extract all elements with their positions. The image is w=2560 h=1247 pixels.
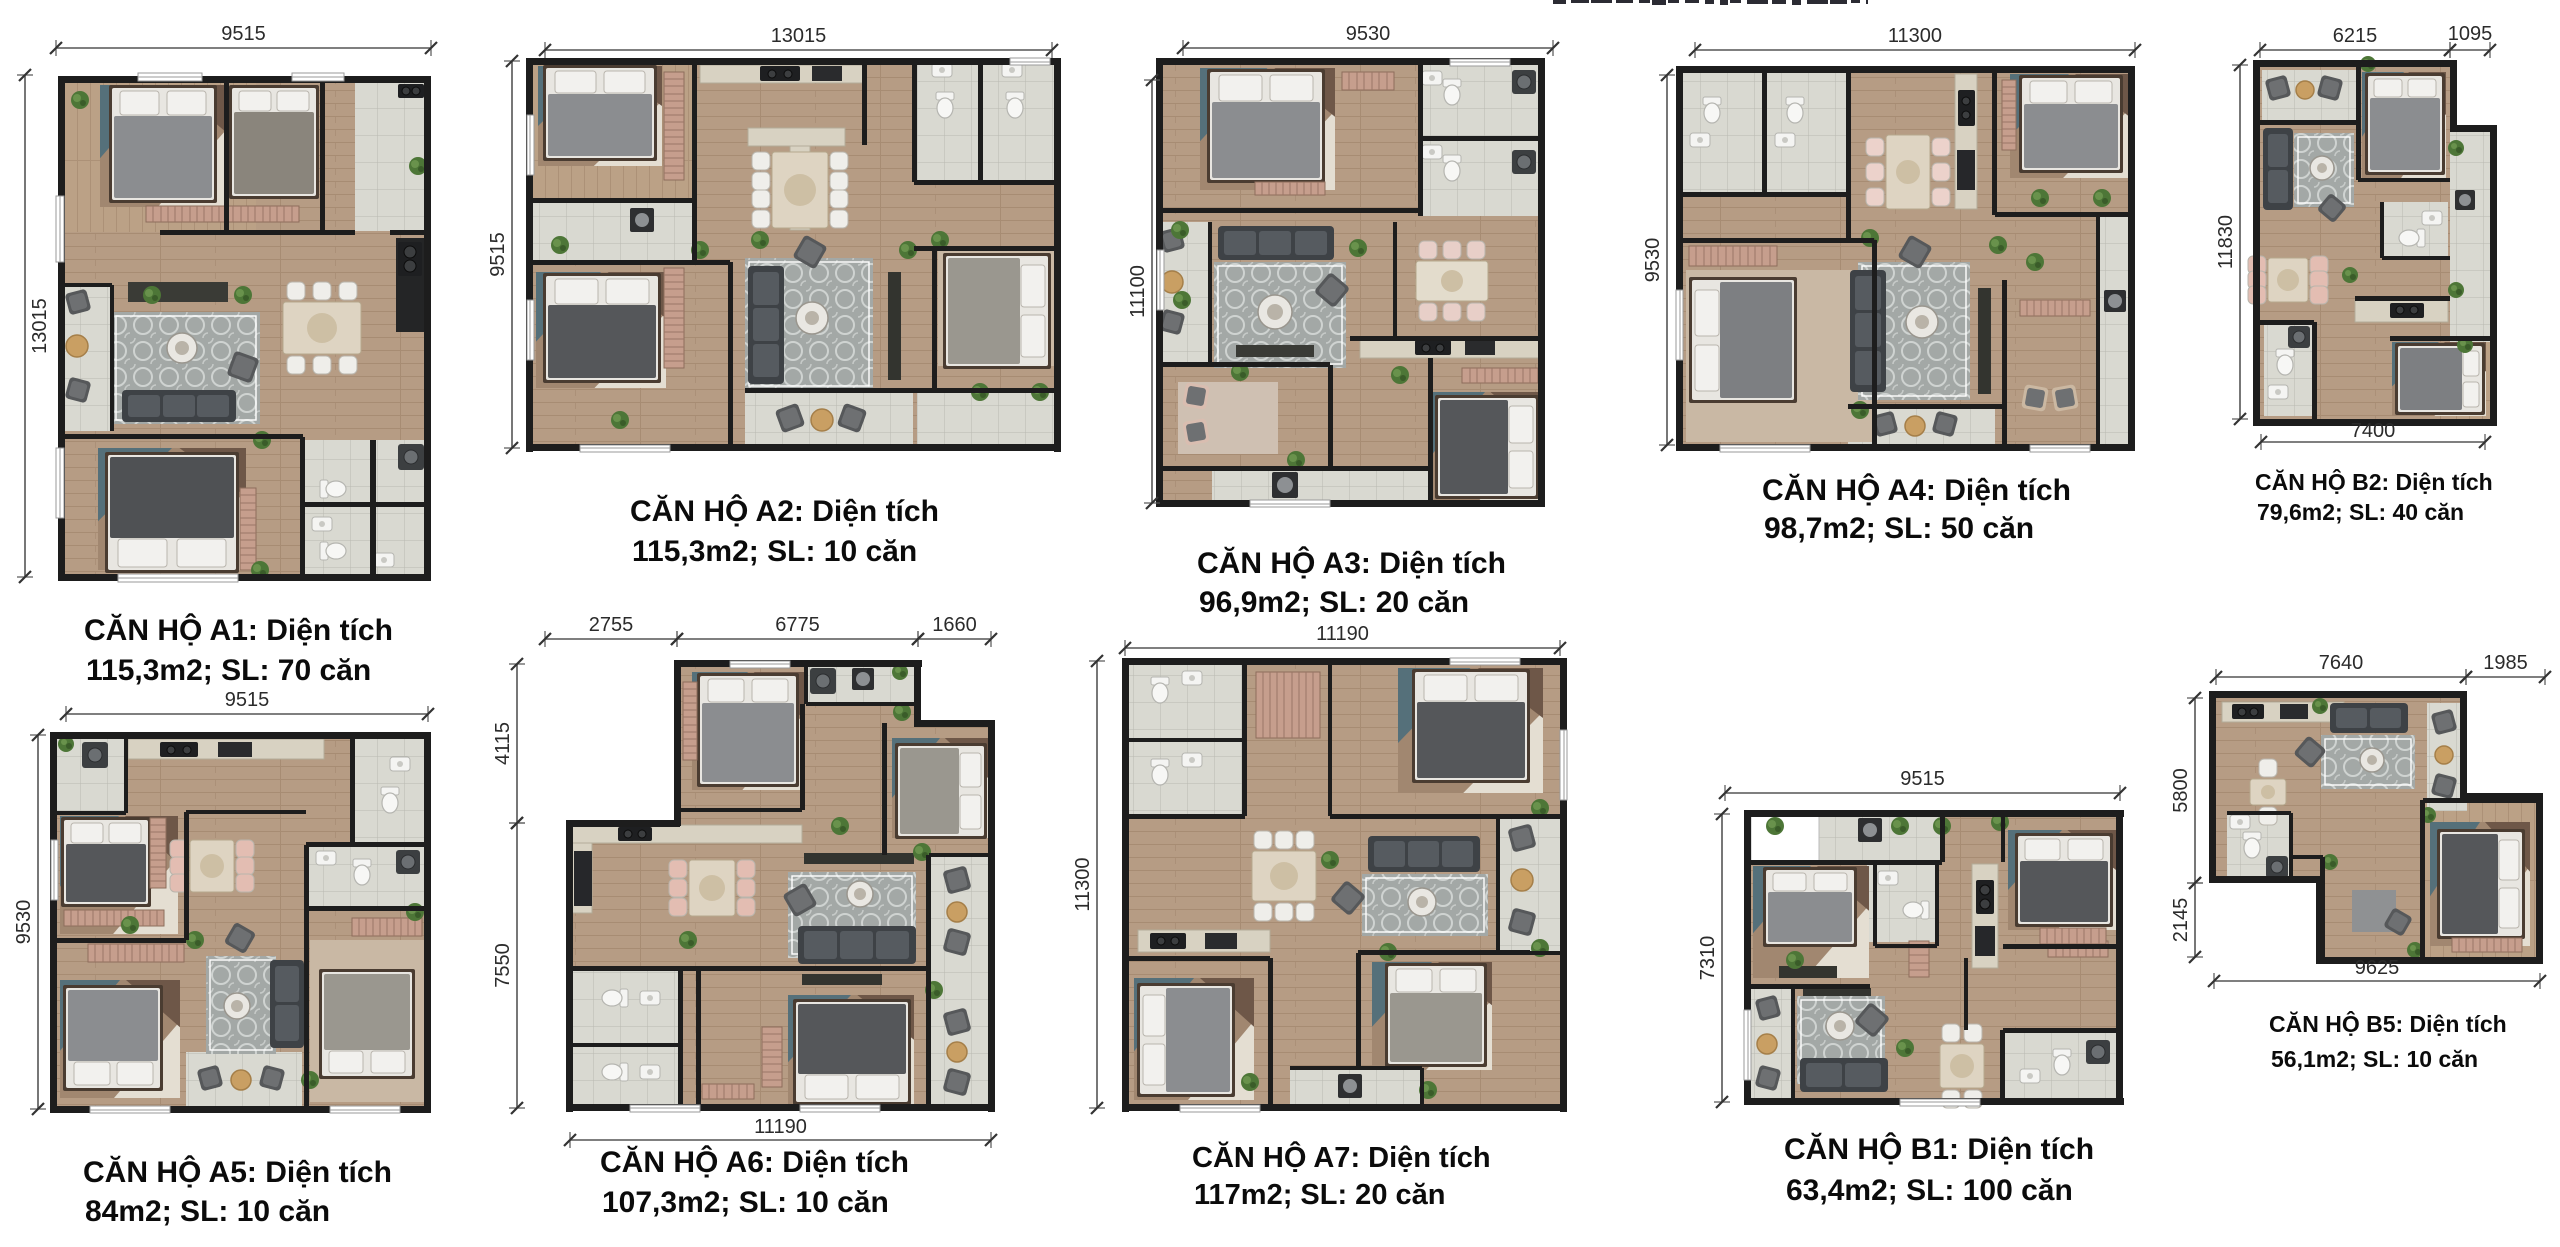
svg-text:98,7m2; SL: 50 căn: 98,7m2; SL: 50 căn (1764, 512, 2034, 545)
svg-text:CĂN HỘ A2: Diện tích: CĂN HỘ A2: Diện tích (630, 494, 939, 528)
svg-text:9515: 9515 (487, 232, 509, 277)
svg-text:CĂN HỘ A1: Diện tích: CĂN HỘ A1: Diện tích (84, 613, 393, 647)
svg-text:79,6m2; SL: 40 căn: 79,6m2; SL: 40 căn (2257, 499, 2464, 525)
svg-text:1095: 1095 (2448, 23, 2493, 45)
svg-text:9515: 9515 (221, 23, 266, 45)
svg-text:13015: 13015 (29, 298, 51, 354)
svg-text:5800: 5800 (2170, 768, 2192, 813)
svg-text:84m2; SL: 10 căn: 84m2; SL: 10 căn (85, 1195, 330, 1228)
svg-text:7400: 7400 (2351, 420, 2396, 442)
svg-text:2755: 2755 (589, 614, 634, 636)
svg-text:CĂN HỘ A5: Diện tích: CĂN HỘ A5: Diện tích (83, 1155, 392, 1189)
svg-text:9625: 9625 (2355, 957, 2400, 979)
svg-text:96,9m2; SL: 20 căn: 96,9m2; SL: 20 căn (1199, 586, 1469, 619)
svg-text:9530: 9530 (1642, 238, 1664, 283)
svg-text:CĂN HỘ B5: Diện tích: CĂN HỘ B5: Diện tích (2269, 1010, 2507, 1037)
svg-text:1660: 1660 (932, 614, 977, 636)
svg-text:6775: 6775 (775, 614, 820, 636)
svg-text:9530: 9530 (1346, 23, 1391, 45)
svg-text:6215: 6215 (2333, 25, 2378, 47)
svg-text:9515: 9515 (225, 689, 270, 711)
svg-text:CĂN HỘ B1: Diện tích: CĂN HỘ B1: Diện tích (1784, 1132, 2094, 1166)
svg-text:7310: 7310 (1697, 936, 1719, 981)
svg-text:4115: 4115 (492, 722, 514, 765)
svg-text:11190: 11190 (1316, 623, 1369, 645)
svg-text:115,3m2; SL: 70 căn: 115,3m2; SL: 70 căn (86, 654, 371, 687)
svg-text:107,3m2; SL: 10 căn: 107,3m2; SL: 10 căn (602, 1186, 889, 1219)
svg-text:56,1m2; SL: 10 căn: 56,1m2; SL: 10 căn (2271, 1046, 2478, 1072)
svg-text:9515: 9515 (1900, 768, 1945, 790)
svg-text:9530: 9530 (13, 900, 35, 945)
svg-text:115,3m2; SL: 10 căn: 115,3m2; SL: 10 căn (632, 535, 917, 568)
svg-text:11300: 11300 (1072, 857, 1094, 911)
svg-text:7640: 7640 (2319, 652, 2364, 674)
svg-text:63,4m2; SL: 100 căn: 63,4m2; SL: 100 căn (1786, 1174, 2073, 1207)
svg-text:13015: 13015 (771, 25, 827, 47)
svg-text:11190: 11190 (754, 1116, 807, 1138)
svg-text:7550: 7550 (492, 943, 514, 988)
svg-text:11830: 11830 (2215, 215, 2237, 269)
svg-text:1985: 1985 (2483, 652, 2528, 674)
svg-text:CĂN HỘ A7: Diện tích: CĂN HỘ A7: Diện tích (1192, 1140, 1491, 1174)
svg-text:117m2; SL: 20 căn: 117m2; SL: 20 căn (1194, 1179, 1445, 1211)
svg-text:11300: 11300 (1888, 25, 1942, 47)
svg-text:CĂN HỘ B2: Diện tích: CĂN HỘ B2: Diện tích (2255, 468, 2493, 495)
svg-text:CĂN HỘ A3: Diện tích: CĂN HỘ A3: Diện tích (1197, 546, 1506, 580)
svg-text:11100: 11100 (1127, 265, 1149, 318)
svg-text:2145: 2145 (2170, 898, 2192, 943)
svg-text:CĂN HỘ A4: Diện tích: CĂN HỘ A4: Diện tích (1762, 473, 2071, 507)
svg-text:CĂN HỘ A6: Diện tích: CĂN HỘ A6: Diện tích (600, 1145, 909, 1179)
